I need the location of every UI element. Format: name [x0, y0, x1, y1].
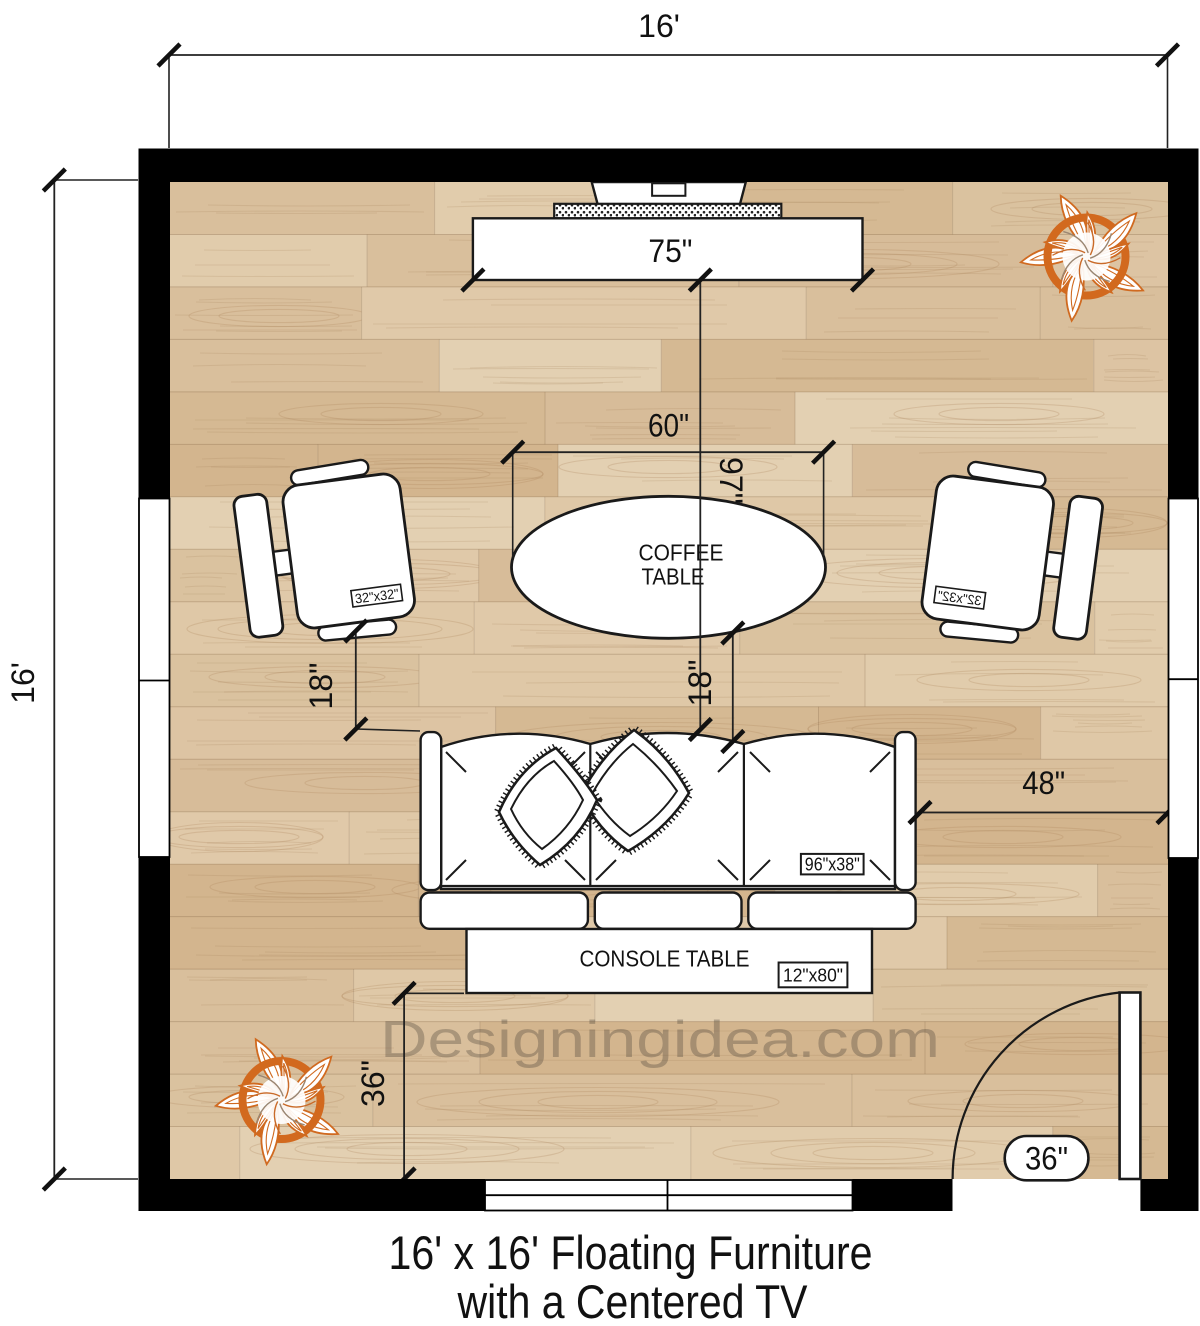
svg-text:16': 16': [5, 662, 41, 704]
svg-text:with a Centered TV: with a Centered TV: [457, 1275, 808, 1326]
svg-text:60": 60": [648, 408, 689, 444]
svg-text:18": 18": [303, 663, 339, 710]
svg-text:96"x38": 96"x38": [805, 854, 860, 874]
svg-text:36": 36": [355, 1060, 391, 1107]
svg-text:TABLE: TABLE: [642, 564, 705, 590]
svg-text:16' x 16' Floating Furniture: 16' x 16' Floating Furniture: [389, 1226, 873, 1279]
svg-text:12"x80": 12"x80": [783, 966, 843, 986]
svg-text:36": 36": [1025, 1141, 1068, 1177]
svg-text:Designingidea.com: Designingidea.com: [380, 1011, 940, 1069]
svg-text:CONSOLE TABLE: CONSOLE TABLE: [580, 946, 750, 972]
svg-text:16': 16': [638, 8, 680, 44]
svg-text:18": 18": [682, 660, 718, 707]
svg-text:97": 97": [713, 457, 749, 504]
svg-text:COFFEE: COFFEE: [639, 540, 724, 566]
svg-text:48": 48": [1022, 765, 1065, 801]
svg-text:75": 75": [648, 233, 692, 269]
